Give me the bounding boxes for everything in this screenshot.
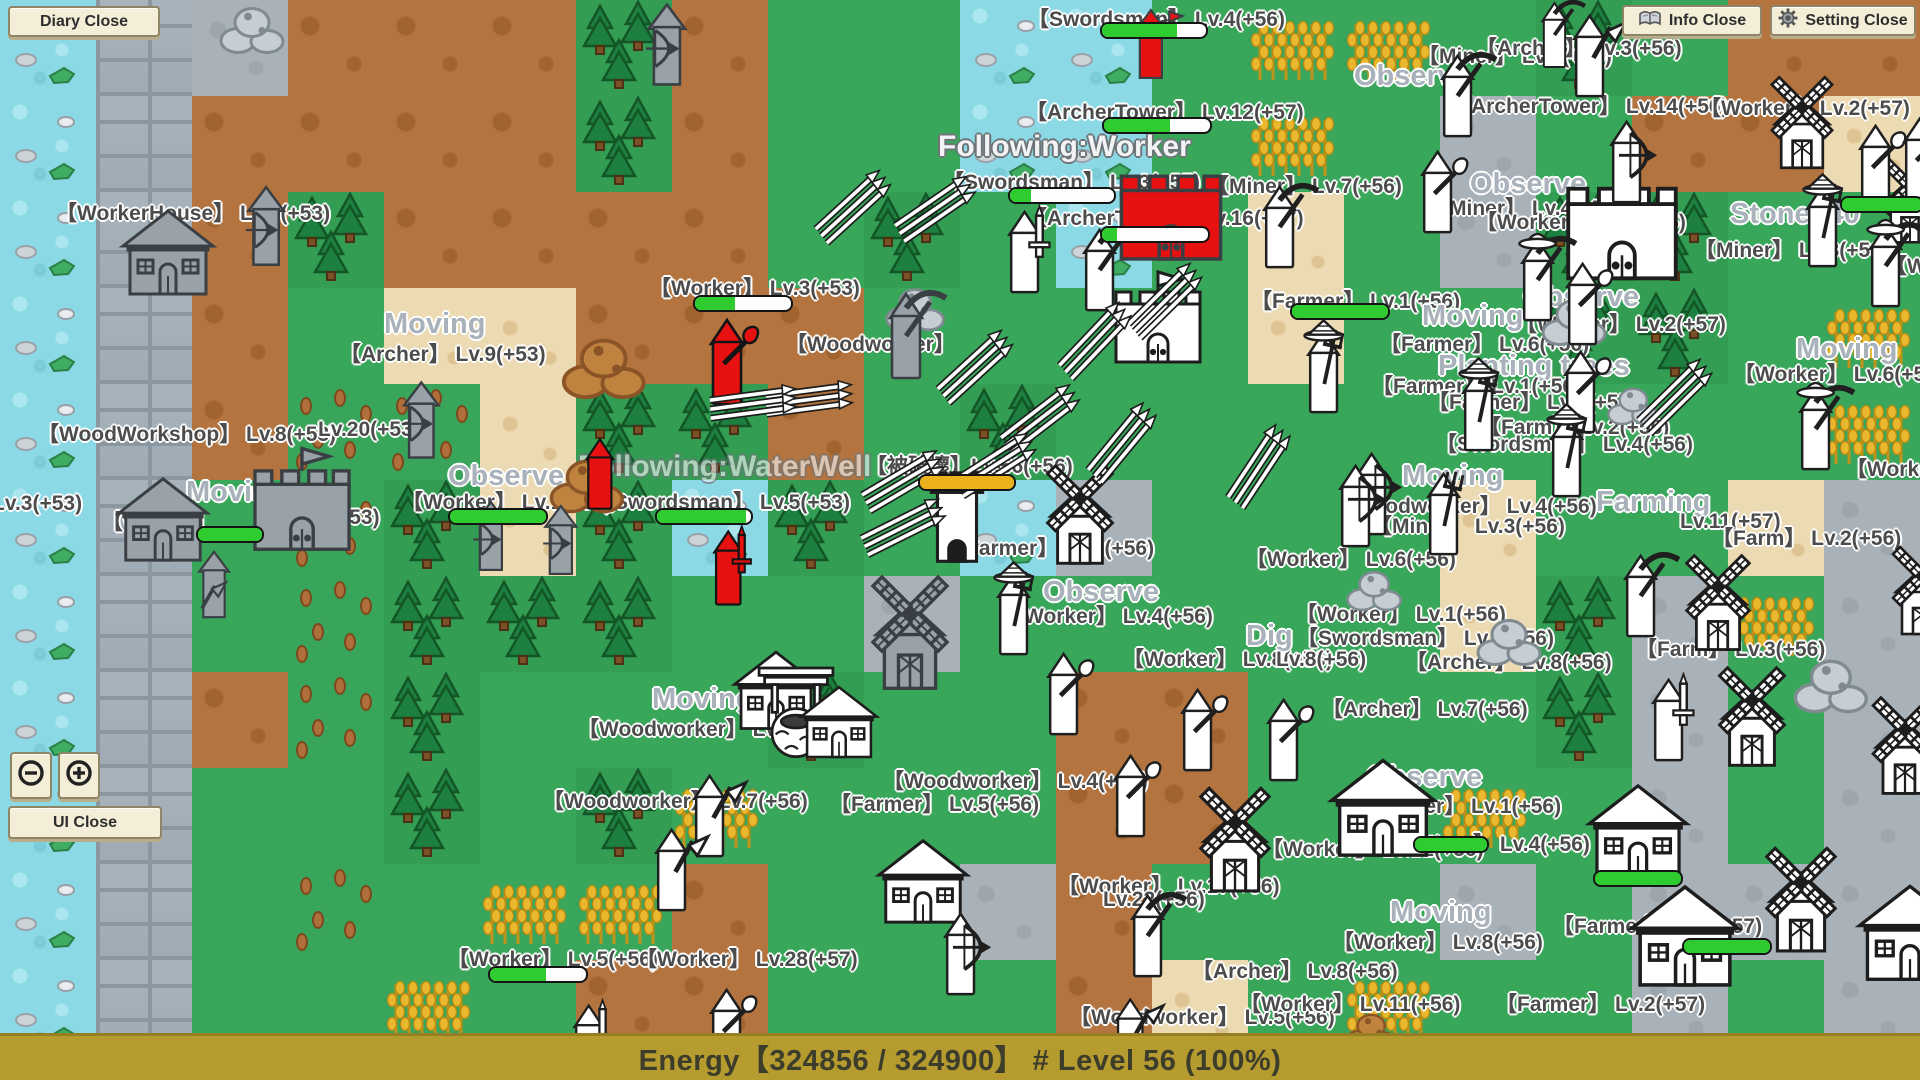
unit-sprite[interactable]: [931, 910, 994, 998]
unit-sprite[interactable]: [642, 826, 705, 914]
building-sprite-house[interactable]: [1626, 874, 1744, 992]
zoom-out-button[interactable]: [10, 752, 52, 799]
unit-sprite[interactable]: [1611, 552, 1674, 640]
entity-label: 【Archer】 Lv.8(+56): [1192, 955, 1398, 985]
ui-close-button[interactable]: UI Close: [8, 806, 162, 839]
unit-sprite[interactable]: [1597, 118, 1660, 206]
energy-status-bar: Energy【324856 / 324900】 # Level 56 (100%…: [0, 1033, 1920, 1080]
energy-text: Energy【324856 / 324900】 # Level 56 (100%…: [639, 1037, 1282, 1079]
health-bar: [196, 526, 264, 543]
building-sprite-mill[interactable]: [846, 568, 974, 696]
building-sprite-mill[interactable]: [1872, 540, 1920, 640]
resource-pile[interactable]: [218, 0, 288, 55]
health-bar: [488, 966, 588, 983]
resource-pile[interactable]: [1475, 612, 1545, 667]
building-sprite-mill[interactable]: [1850, 690, 1920, 800]
health-bar: [1840, 196, 1920, 213]
projectile-arrow: [885, 170, 984, 249]
entity-label: 【Archer】 Lv.9(+53): [340, 338, 546, 368]
health-bar: [1100, 22, 1208, 39]
unit-sprite[interactable]: [1250, 183, 1313, 271]
entity-label: 【Archer】 Lv.7(+56): [1322, 693, 1528, 723]
unit-sprite[interactable]: [1118, 892, 1181, 980]
unit-sprite[interactable]: [1786, 385, 1849, 473]
entity-label: 【Worker】 Lv.8(+56): [1333, 926, 1543, 956]
unit-sprite[interactable]: [984, 570, 1047, 658]
entity-label: Lv.3(+53): [0, 492, 82, 516]
unit-sprite[interactable]: [1856, 222, 1919, 310]
health-bar: [1593, 870, 1683, 887]
entity-label: Lv.8(+56): [1276, 648, 1366, 672]
unit-sprite[interactable]: [1531, 0, 1581, 70]
unit-sprite[interactable]: [1414, 470, 1477, 558]
building-sprite-mill[interactable]: [1664, 548, 1772, 656]
unit-sprite[interactable]: [1449, 366, 1512, 454]
unit-sprite[interactable]: [1294, 328, 1357, 416]
entity-label: 【Worker】 Lv.28(+57): [636, 943, 858, 973]
building-sprite-house[interactable]: [797, 678, 881, 762]
health-bar: [693, 295, 793, 312]
health-bar: [655, 508, 753, 525]
health-bar: [918, 474, 1016, 491]
unit-sprite[interactable]: [1034, 650, 1097, 738]
plus-circle-icon: [65, 759, 93, 792]
health-bar: [448, 508, 548, 525]
building-sprite-tower[interactable]: [192, 548, 246, 621]
unit-sprite[interactable]: [1168, 686, 1231, 774]
health-bar: [1100, 226, 1210, 243]
projectile-arrow: [804, 164, 900, 251]
diary-close-button[interactable]: Diary Close: [8, 6, 160, 37]
unit-sprite[interactable]: [1553, 260, 1616, 348]
minus-circle-icon: [17, 759, 45, 792]
entity-label: 【Worker】 Lv.8(+56): [1846, 453, 1920, 483]
building-sprite-house[interactable]: [1584, 774, 1692, 882]
book-icon: [1638, 10, 1662, 32]
setting-close-button[interactable]: Setting Close: [1770, 5, 1916, 36]
health-bar: [1290, 303, 1390, 320]
unit-sprite[interactable]: [995, 208, 1058, 296]
entity-label: 【Farmer】 Lv.2(+57): [1496, 988, 1705, 1018]
info-close-button[interactable]: Info Close: [1622, 5, 1762, 36]
building-sprite-mill[interactable]: [1696, 660, 1808, 772]
building-sprite-mill[interactable]: [1750, 70, 1854, 174]
projectile-arrow: [705, 382, 799, 425]
status-text: Moving: [1390, 896, 1492, 929]
unit-sprite[interactable]: [1428, 52, 1491, 140]
projectile-arrow: [1215, 419, 1302, 515]
building-sprite-mill[interactable]: [1176, 780, 1294, 898]
building-sprite-tower[interactable]: [396, 378, 458, 462]
unit-sprite[interactable]: [1408, 148, 1471, 236]
building-sprite-tower[interactable]: [1128, 6, 1184, 82]
health-bar: [1682, 938, 1772, 955]
building-sprite-tower[interactable]: [240, 183, 304, 269]
building-sprite-mill[interactable]: [1024, 458, 1136, 570]
ui-close-label: UI Close: [53, 814, 117, 832]
building-sprite-tower[interactable]: [640, 0, 706, 89]
resource-pile[interactable]: [560, 330, 650, 400]
health-bar: [1102, 117, 1212, 134]
unit-sprite[interactable]: [574, 436, 629, 512]
unit-sprite[interactable]: [701, 528, 759, 608]
unit-sprite[interactable]: [1639, 676, 1702, 764]
info-close-label: Info Close: [1669, 12, 1746, 30]
status-text: Moving: [1796, 333, 1898, 366]
zoom-in-button[interactable]: [58, 752, 100, 799]
unit-sprite[interactable]: [1890, 115, 1920, 203]
entity-layer: 【WorkerHouse】 Lv.9(+53)【Swordsman】 Lv.4(…: [0, 0, 1920, 1080]
building-sprite-house[interactable]: [1854, 874, 1920, 986]
unit-sprite[interactable]: [1326, 462, 1389, 550]
diary-close-label: Diary Close: [40, 13, 128, 31]
game-viewport[interactable]: 【WorkerHouse】 Lv.9(+53)【Swordsman】 Lv.4(…: [0, 0, 1920, 1080]
status-text: Moving: [384, 308, 486, 341]
health-bar: [1413, 836, 1489, 853]
entity-label: 【Woodworker】 Lv.7(+56): [543, 785, 808, 815]
unit-sprite[interactable]: [1254, 696, 1317, 784]
unit-sprite[interactable]: [1101, 752, 1164, 840]
setting-close-label: Setting Close: [1805, 12, 1907, 30]
health-bar: [1008, 187, 1116, 204]
gear-icon: [1778, 8, 1798, 33]
unit-sprite[interactable]: [1537, 412, 1600, 500]
resource-pile[interactable]: [1345, 565, 1405, 612]
building-sprite-house[interactable]: [118, 200, 218, 300]
unit-sprite[interactable]: [875, 290, 941, 382]
